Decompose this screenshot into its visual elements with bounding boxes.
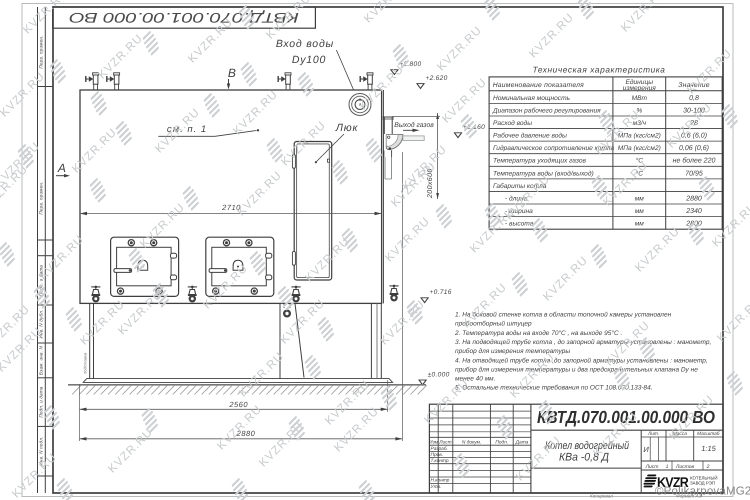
svg-text:Взам. инв. N: Взам. инв. N <box>38 345 43 375</box>
svg-text:не более 220: не более 220 <box>673 157 716 165</box>
svg-text:Масштаб: Масштаб <box>697 431 720 437</box>
svg-text:подставка: подставка <box>83 352 88 374</box>
svg-text:Выход газов: Выход газов <box>394 121 434 129</box>
svg-text:мм: мм <box>635 208 645 215</box>
svg-text:МВт: МВт <box>632 95 648 102</box>
svg-text:1. На боковой стенке котла в: 1. На боковой стенке котла в области топ… <box>455 312 672 319</box>
svg-text:Лист: Лист <box>438 439 451 445</box>
svg-text:Перв. примен.: Перв. примен. <box>38 181 43 214</box>
svg-text:+0.716: +0.716 <box>430 289 452 296</box>
svg-text:Пров.: Пров. <box>431 452 444 458</box>
svg-text:Рабочее давление воды: Рабочее давление воды <box>493 133 567 140</box>
svg-text:мм: мм <box>635 195 645 202</box>
svg-text:Диапазон рабочего регулировани: Диапазон рабочего регулирования <box>492 107 601 114</box>
svg-text:3. На подводящей трубе котла: 3. На подводящей трубе котла , до запорн… <box>455 339 711 346</box>
svg-text:Техническая характеристика: Техническая характеристика <box>532 65 665 75</box>
svg-text:МПа (кгс/см2): МПа (кгс/см2) <box>618 145 661 152</box>
svg-text:Т.контр.: Т.контр. <box>431 458 450 464</box>
svg-text:мм: мм <box>635 221 645 228</box>
svg-text:прибор для измерения температу: прибор для измерения температуры <box>455 348 570 355</box>
svg-text:Перв. примен.: Перв. примен. <box>38 35 43 68</box>
svg-text:2: 2 <box>706 464 710 470</box>
svg-text:Разраб.: Разраб. <box>431 446 448 452</box>
svg-text:Н.контр: Н.контр <box>431 478 450 484</box>
svg-text:©PolikarpovaMG2021: ©PolikarpovaMG2021 <box>655 486 750 498</box>
svg-text:4. На отводящей трубе котла ,: 4. На отводящей трубе котла ,до запорной… <box>455 357 708 364</box>
svg-text:Дата: Дата <box>515 439 529 445</box>
svg-text:Люк: Люк <box>335 122 359 134</box>
svg-text:2560: 2560 <box>228 400 248 409</box>
svg-text:2. Температура воды на входе: 2. Температура воды на входе 70°С , на в… <box>454 330 622 337</box>
svg-text:Листов: Листов <box>675 464 695 470</box>
svg-text:Утв.: Утв. <box>431 484 442 490</box>
svg-text:Копировал: Копировал <box>590 494 613 499</box>
svg-text:И: И <box>643 445 649 454</box>
svg-text:2880: 2880 <box>685 195 702 202</box>
svg-text:Лист: Лист <box>645 464 659 470</box>
svg-text:70/95: 70/95 <box>685 169 703 177</box>
svg-text:Dy100: Dy100 <box>292 54 326 66</box>
svg-text:КВТД.070.001.00.000 ВО: КВТД.070.001.00.000 ВО <box>69 10 299 26</box>
svg-text:Подп. и дата: Подп. и дата <box>38 386 43 417</box>
svg-text:1: 1 <box>666 464 669 470</box>
svg-text:N докум.: N докум. <box>462 439 481 445</box>
svg-text:2340: 2340 <box>685 208 702 215</box>
svg-text:Наименование показателя: Наименование показателя <box>493 82 584 89</box>
svg-text:Изм: Изм <box>429 439 439 445</box>
svg-text:±0.000: ±0.000 <box>428 371 450 378</box>
svg-text:Расход воды: Расход воды <box>493 120 532 127</box>
svg-text:0,06 (0,6): 0,06 (0,6) <box>679 144 709 152</box>
svg-text:Температура уходящих газов: Температура уходящих газов <box>493 158 586 165</box>
svg-text:измерения: измерения <box>623 85 656 92</box>
svg-text:Лит.: Лит. <box>647 431 659 437</box>
svg-text:В: В <box>228 66 236 80</box>
svg-text:прибор для измерения температу: прибор для измерения температуры и два п… <box>455 366 698 373</box>
svg-text:Вход воды: Вход воды <box>276 38 334 50</box>
svg-text:Подп.: Подп. <box>495 439 508 445</box>
svg-text:А: А <box>57 161 66 175</box>
svg-text:+2.620: +2.620 <box>425 75 447 82</box>
svg-text:Номинальная мощность: Номинальная мощность <box>493 95 571 102</box>
svg-text:1:15: 1:15 <box>701 444 716 453</box>
